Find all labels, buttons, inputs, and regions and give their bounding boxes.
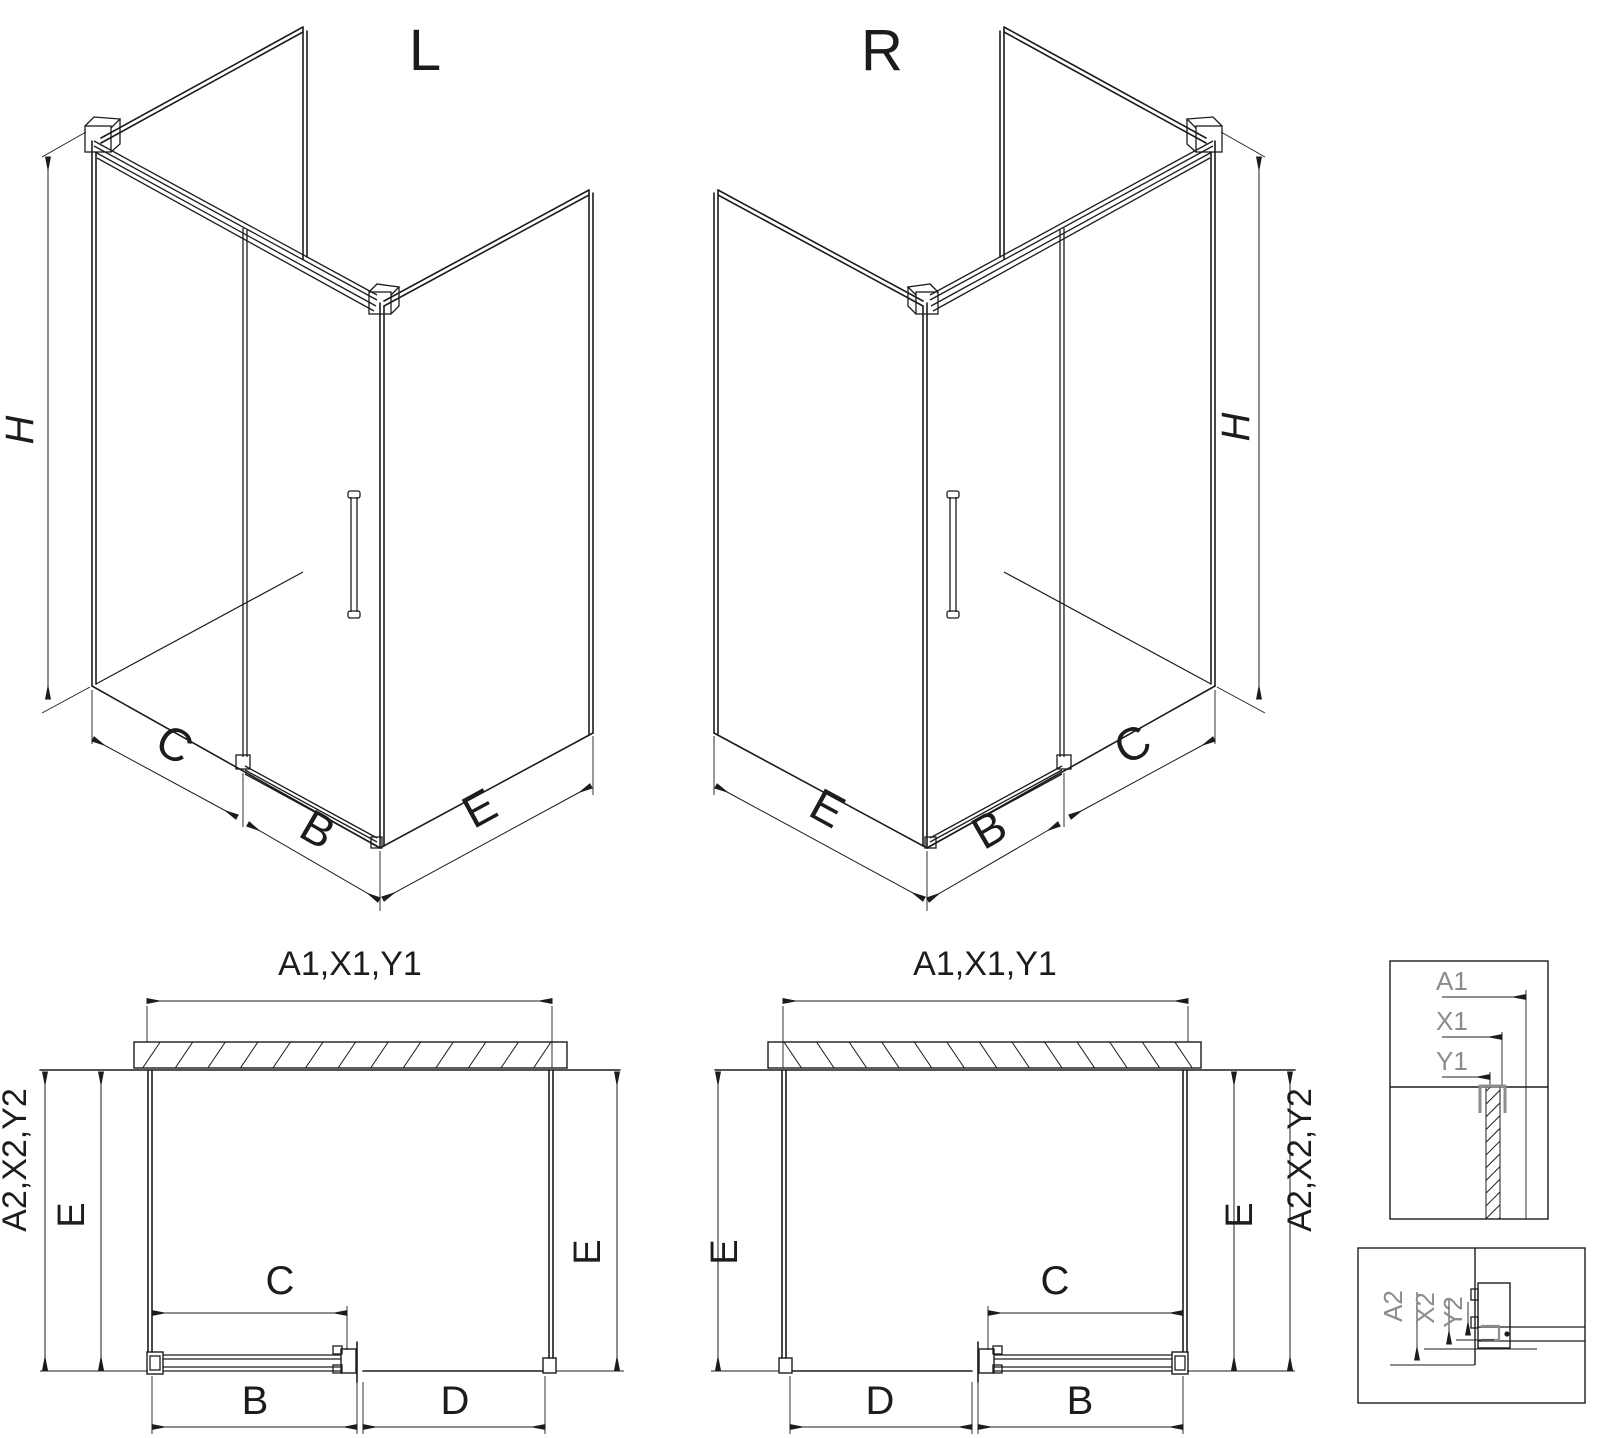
detail-top-label-y1: Y1 <box>1436 1046 1468 1076</box>
technical-drawing-page: L H C B E R H C B E A1,X1,Y1 A2,X2,Y2 E … <box>0 0 1600 1438</box>
plan-r-dim-side-outer: A2,X2,Y2 <box>1281 1088 1319 1232</box>
plan-l-dim-e-right: E <box>567 1239 609 1264</box>
plan-r-dim-top: A1,X1,Y1 <box>913 945 1057 983</box>
plan-r-dim-d: D <box>866 1379 895 1423</box>
detail-view-bottom: A2 X2 Y2 <box>1358 1248 1585 1403</box>
detail-bottom-label-y2: Y2 <box>1438 1296 1468 1328</box>
iso-r-dim-e: E <box>802 778 854 838</box>
iso-r-dim-h: H <box>1214 412 1258 441</box>
iso-view-l: L H C B E <box>0 18 593 911</box>
iso-view-r: R H C B E <box>714 18 1265 911</box>
iso-l-dim-e: E <box>453 778 505 838</box>
plan-l-dim-side-outer: A2,X2,Y2 <box>0 1088 34 1232</box>
iso-l-title: L <box>409 18 441 83</box>
plan-r-dim-e-right: E <box>1219 1202 1261 1227</box>
iso-l-dim-h: H <box>0 415 42 444</box>
detail-view-top: A1 X1 Y1 <box>1390 961 1548 1219</box>
plan-r-dim-b: B <box>1067 1379 1094 1423</box>
plan-l-dim-d: D <box>441 1379 470 1423</box>
plan-view-r: A1,X1,Y1 A2,X2,Y2 E E C B D <box>704 945 1319 1434</box>
plan-l-dim-c: C <box>266 1259 295 1303</box>
drawing-canvas: L H C B E R H C B E A1,X1,Y1 A2,X2,Y2 E … <box>0 0 1600 1438</box>
plan-r-dim-c: C <box>1041 1259 1070 1303</box>
plan-r-dim-e-left: E <box>704 1239 746 1264</box>
detail-top-label-x1: X1 <box>1436 1006 1468 1036</box>
plan-l-dim-e-left: E <box>51 1202 93 1227</box>
plan-l-dim-b: B <box>242 1379 269 1423</box>
plan-view-l: A1,X1,Y1 A2,X2,Y2 E E C B D <box>0 945 624 1434</box>
detail-bottom-label-a2: A2 <box>1378 1290 1408 1322</box>
iso-l-dim-b: B <box>292 799 345 859</box>
iso-r-dim-b: B <box>963 799 1016 859</box>
detail-bottom-label-x2: X2 <box>1410 1292 1440 1324</box>
detail-top-label-a1: A1 <box>1436 966 1468 996</box>
iso-r-title: R <box>861 18 903 83</box>
plan-l-dim-top: A1,X1,Y1 <box>278 945 422 983</box>
